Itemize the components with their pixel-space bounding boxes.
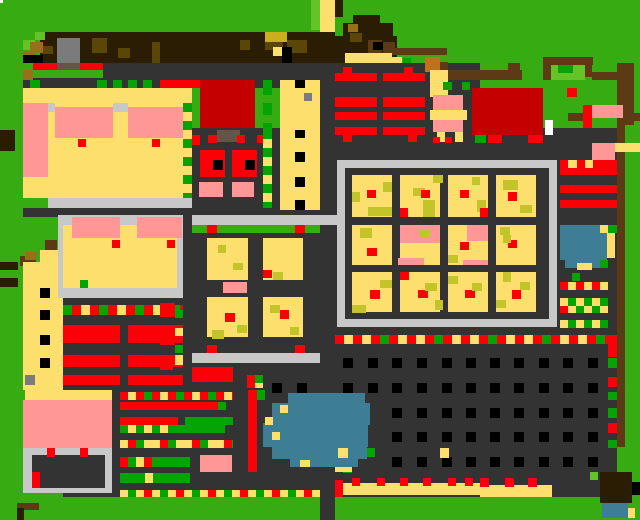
map-tile — [295, 225, 305, 233]
dot-marker — [368, 358, 378, 368]
map-tile — [200, 455, 232, 472]
pattern-tile — [90, 305, 99, 315]
map-tile — [350, 33, 362, 42]
pattern-tile — [576, 282, 584, 290]
map-tile — [80, 448, 88, 457]
map-tile — [367, 448, 375, 457]
pattern-tile — [263, 184, 272, 193]
dot-marker — [442, 408, 452, 418]
pixel-park-map[interactable] — [0, 0, 640, 520]
map-tile — [143, 80, 152, 88]
map-tile — [503, 272, 511, 282]
pattern-tile — [160, 425, 168, 433]
pattern-tile — [126, 305, 135, 315]
pattern-tile — [216, 392, 224, 400]
pattern-tile — [136, 457, 144, 467]
map-tile — [352, 225, 392, 265]
dot-marker — [466, 432, 476, 442]
map-tile — [608, 377, 617, 387]
map-tile — [185, 417, 233, 425]
map-tile — [500, 227, 510, 235]
map-tile — [568, 113, 583, 121]
map-tile — [113, 80, 122, 88]
map-tile — [577, 263, 592, 270]
map-tile — [632, 482, 640, 495]
map-tile — [337, 160, 557, 168]
pattern-tile — [63, 305, 72, 315]
pattern-tile — [183, 139, 192, 148]
map-tile — [433, 95, 463, 110]
pattern-tile — [592, 282, 600, 290]
pattern-tile — [263, 193, 272, 202]
map-tile — [175, 310, 183, 318]
pattern-tile — [183, 175, 192, 184]
pattern-tile — [488, 335, 497, 344]
dot-marker — [272, 383, 282, 393]
dot-marker — [539, 358, 549, 368]
map-tile — [160, 80, 200, 88]
map-tile — [423, 200, 435, 217]
map-tile — [352, 305, 366, 313]
pattern-tile — [216, 440, 224, 448]
pattern-tile — [152, 425, 160, 433]
map-tile — [488, 135, 502, 143]
dot-marker — [539, 457, 549, 467]
map-tile — [475, 135, 486, 143]
map-tile — [608, 335, 617, 357]
map-tile — [0, 0, 3, 3]
map-tile — [273, 272, 283, 280]
dot-marker — [563, 432, 573, 442]
map-tile — [78, 139, 86, 147]
pattern-tile — [232, 392, 233, 400]
pattern-tile — [120, 425, 128, 433]
map-tile — [467, 225, 488, 241]
map-tile — [63, 375, 120, 385]
map-tile — [373, 42, 383, 50]
pattern-tile — [200, 440, 208, 448]
map-tile — [48, 103, 55, 112]
map-tile — [360, 228, 372, 238]
map-tile — [270, 305, 280, 313]
map-tile — [433, 137, 440, 143]
map-tile — [602, 503, 628, 518]
map-tile — [72, 217, 120, 238]
pattern-tile — [192, 440, 200, 448]
map-tile — [455, 132, 463, 142]
pattern-tile — [506, 335, 515, 344]
pattern-tile — [208, 440, 216, 448]
map-tile — [508, 63, 520, 71]
map-tile — [80, 280, 88, 288]
map-tile — [192, 215, 337, 225]
pattern-tile — [232, 490, 240, 497]
map-tile — [43, 46, 53, 54]
pattern-tile — [407, 335, 416, 344]
pattern-tile — [183, 103, 192, 112]
map-tile — [47, 448, 55, 457]
map-tile — [137, 217, 182, 238]
map-tile — [35, 32, 45, 40]
map-tile — [335, 97, 377, 107]
map-tile — [120, 402, 218, 410]
map-tile — [280, 80, 320, 210]
map-tile — [425, 283, 437, 291]
map-tile — [218, 245, 226, 253]
pattern-tile — [200, 490, 208, 497]
pattern-tile — [192, 490, 200, 497]
pattern-tile — [584, 320, 592, 328]
map-tile — [25, 252, 37, 260]
map-tile — [207, 225, 217, 233]
dot-marker — [588, 432, 598, 442]
pattern-tile — [272, 490, 280, 497]
map-tile — [33, 63, 57, 70]
map-tile — [420, 230, 430, 238]
map-tile — [183, 208, 192, 308]
pattern-tile — [551, 335, 560, 344]
map-tile — [167, 240, 175, 248]
pattern-tile — [176, 392, 184, 400]
pattern-tile — [144, 457, 152, 467]
pattern-tile — [380, 335, 389, 344]
map-tile — [560, 200, 617, 208]
pattern-tile — [208, 490, 216, 497]
map-tile — [311, 0, 320, 30]
map-tile — [572, 273, 580, 281]
map-tile — [608, 408, 617, 418]
pattern-tile — [120, 392, 128, 400]
map-tile — [480, 208, 488, 217]
map-tile — [257, 390, 265, 400]
pattern-tile — [72, 305, 81, 315]
pattern-tile — [183, 121, 192, 130]
map-tile — [0, 262, 18, 270]
map-tile — [503, 180, 518, 190]
dot-marker — [539, 432, 549, 442]
dot-marker — [392, 432, 402, 442]
map-tile — [343, 134, 352, 142]
dot-marker — [588, 408, 598, 418]
map-tile — [280, 310, 289, 319]
map-tile — [615, 143, 640, 152]
pattern-tile — [524, 335, 533, 344]
pattern-tile — [568, 306, 576, 313]
pattern-tile — [183, 130, 192, 139]
map-tile — [320, 473, 335, 520]
map-tile — [40, 358, 50, 368]
pattern-tile — [335, 335, 344, 344]
pattern-tile — [263, 166, 272, 175]
map-tile — [237, 325, 247, 333]
pattern-tile — [183, 148, 192, 157]
pattern-tile — [128, 440, 136, 448]
pattern-tile — [443, 335, 452, 344]
pattern-tile — [240, 490, 248, 497]
pattern-tile — [600, 306, 608, 313]
map-tile — [290, 327, 299, 335]
pattern-tile — [578, 335, 587, 344]
map-tile — [128, 375, 183, 385]
map-tile — [128, 107, 183, 138]
map-tile — [63, 355, 120, 367]
map-tile — [368, 57, 402, 63]
map-tile — [295, 200, 305, 210]
pattern-tile — [600, 320, 608, 328]
map-tile — [263, 115, 272, 123]
pattern-tile — [416, 335, 425, 344]
dot-marker — [392, 457, 402, 467]
map-tile — [448, 276, 458, 284]
dot-marker — [539, 408, 549, 418]
map-tile — [600, 260, 608, 268]
pattern-tile — [183, 166, 192, 175]
map-tile — [207, 238, 248, 280]
pattern-tile — [568, 320, 576, 328]
map-tile — [367, 248, 377, 256]
map-tile — [175, 355, 183, 365]
dot-marker — [442, 432, 452, 442]
map-tile — [145, 473, 153, 483]
map-tile — [418, 290, 428, 298]
pattern-tile — [398, 335, 407, 344]
map-tile — [272, 432, 280, 440]
pattern-tile — [248, 490, 256, 497]
pattern-tile — [389, 335, 398, 344]
map-tile — [400, 272, 409, 280]
pattern-tile — [144, 440, 152, 448]
dot-marker — [417, 358, 427, 368]
pattern-tile — [587, 335, 596, 344]
pattern-tile — [280, 490, 288, 497]
map-tile — [448, 255, 458, 263]
map-tile — [48, 198, 192, 208]
map-tile — [32, 455, 105, 488]
map-tile — [403, 58, 411, 63]
map-tile — [160, 303, 175, 317]
pattern-tile — [344, 335, 353, 344]
dot-marker — [505, 478, 514, 487]
pattern-tile — [569, 335, 578, 344]
map-tile — [585, 57, 592, 77]
dot-marker — [480, 478, 489, 487]
pattern-tile — [160, 440, 168, 448]
dot-marker — [442, 358, 452, 368]
pattern-tile — [263, 175, 272, 184]
map-tile — [263, 95, 272, 103]
dot-marker — [563, 457, 573, 467]
pattern-tile — [452, 335, 461, 344]
map-tile — [528, 135, 543, 143]
dot-marker — [490, 457, 500, 467]
pattern-tile — [184, 490, 192, 497]
pattern-tile — [515, 335, 524, 344]
pattern-tile — [168, 392, 176, 400]
pattern-tile — [136, 425, 144, 433]
map-tile — [383, 73, 425, 81]
pattern-tile — [120, 490, 128, 497]
map-tile — [23, 55, 43, 63]
map-tile — [265, 32, 287, 42]
map-tile — [160, 355, 173, 370]
pattern-tile — [576, 306, 584, 313]
map-tile — [443, 82, 452, 90]
map-tile — [63, 325, 120, 343]
map-tile — [395, 48, 447, 55]
pattern-tile — [232, 440, 233, 448]
pattern-tile — [592, 298, 600, 306]
map-tile — [460, 242, 469, 250]
pattern-tile — [497, 335, 506, 344]
dot-marker — [400, 478, 408, 486]
pattern-tile — [461, 335, 470, 344]
map-tile — [237, 135, 245, 143]
map-tile — [512, 290, 521, 299]
pattern-tile — [362, 335, 371, 344]
map-tile — [335, 0, 343, 17]
dot-marker — [297, 383, 307, 393]
map-tile — [160, 328, 175, 345]
pattern-tile — [216, 490, 224, 497]
map-tile — [23, 262, 63, 390]
dot-marker — [343, 358, 353, 368]
map-tile — [218, 402, 226, 410]
map-tile — [335, 127, 377, 135]
pattern-tile — [224, 490, 232, 497]
map-tile — [295, 152, 305, 162]
pattern-tile — [288, 490, 296, 497]
pattern-tile — [576, 320, 584, 328]
map-tile — [560, 185, 617, 193]
map-tile — [192, 367, 233, 382]
dot-marker — [466, 358, 476, 368]
dot-marker — [563, 408, 573, 418]
pattern-tile — [152, 490, 160, 497]
map-tile — [590, 472, 598, 480]
dot-marker — [588, 358, 598, 368]
map-tile — [370, 290, 380, 299]
map-tile — [480, 485, 552, 497]
map-tile — [23, 70, 33, 80]
pattern-tile — [120, 440, 128, 448]
pattern-tile — [600, 298, 608, 306]
dot-marker — [343, 383, 353, 393]
dot-marker — [442, 457, 452, 467]
pattern-tile — [128, 425, 136, 433]
dot-marker — [417, 457, 427, 467]
pattern-tile — [592, 306, 600, 313]
pattern-tile — [263, 130, 272, 139]
pattern-tile — [136, 440, 144, 448]
dot-marker — [417, 408, 427, 418]
map-tile — [592, 105, 623, 118]
dot-marker — [514, 358, 524, 368]
map-tile — [383, 97, 425, 107]
map-tile — [240, 40, 250, 50]
map-tile — [233, 263, 243, 270]
map-tile — [232, 182, 254, 197]
map-tile — [263, 270, 272, 278]
map-tile — [568, 160, 577, 168]
pattern-tile — [152, 457, 160, 467]
map-tile — [192, 135, 200, 143]
map-tile — [97, 80, 107, 88]
map-tile — [408, 134, 417, 142]
dot-marker — [490, 358, 500, 368]
map-tile — [0, 130, 15, 151]
map-tile — [343, 483, 480, 495]
map-tile — [57, 63, 80, 70]
pattern-tile — [144, 392, 152, 400]
map-tile — [585, 160, 593, 168]
pattern-tile — [479, 335, 488, 344]
pattern-tile — [560, 298, 568, 306]
pattern-tile — [533, 335, 542, 344]
map-tile — [435, 300, 443, 310]
map-tile — [23, 400, 112, 448]
pattern-tile — [584, 282, 592, 290]
pattern-tile — [135, 305, 144, 315]
map-tile — [496, 300, 506, 308]
map-tile — [200, 80, 255, 128]
map-tile — [280, 405, 288, 413]
pattern-tile — [168, 490, 176, 497]
pattern-tile — [144, 490, 152, 497]
dot-marker — [392, 358, 402, 368]
map-tile — [400, 208, 408, 217]
pattern-tile — [560, 335, 569, 344]
pattern-tile — [128, 392, 136, 400]
pattern-tile — [371, 335, 380, 344]
map-tile — [433, 120, 463, 132]
pattern-tile — [576, 298, 584, 306]
map-tile — [199, 182, 223, 197]
map-tile — [348, 24, 358, 32]
pattern-tile — [99, 305, 108, 315]
map-tile — [583, 105, 592, 128]
map-tile — [175, 345, 183, 353]
pattern-tile — [176, 440, 184, 448]
pattern-tile — [224, 440, 232, 448]
map-tile — [40, 310, 50, 320]
dot-marker — [514, 457, 524, 467]
map-tile — [623, 113, 640, 121]
pattern-tile — [592, 320, 600, 328]
map-tile — [433, 175, 443, 183]
map-tile — [295, 130, 305, 138]
pattern-tile — [152, 440, 160, 448]
map-tile — [273, 47, 282, 56]
map-tile — [508, 192, 517, 201]
map-tile — [383, 127, 425, 135]
map-tile — [168, 425, 225, 433]
map-tile — [567, 88, 577, 97]
dot-marker — [514, 383, 524, 393]
pattern-tile — [152, 392, 160, 400]
dot-marker — [490, 432, 500, 442]
map-tile — [520, 205, 532, 213]
pattern-tile — [183, 184, 192, 193]
map-tile — [120, 417, 178, 425]
map-tile — [608, 358, 617, 368]
dot-marker — [377, 478, 385, 486]
map-tile — [600, 225, 608, 233]
map-tile — [430, 110, 467, 120]
map-tile — [543, 62, 551, 80]
dot-marker — [466, 383, 476, 393]
map-tile — [463, 260, 488, 265]
dot-marker — [466, 408, 476, 418]
